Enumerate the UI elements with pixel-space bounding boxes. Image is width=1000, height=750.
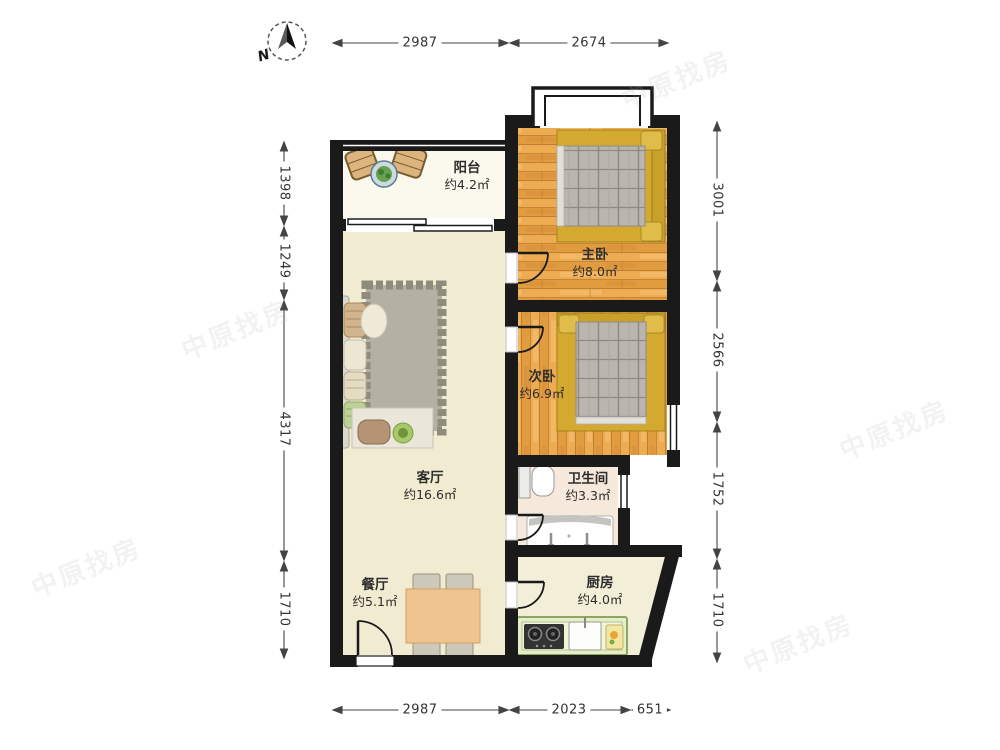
room-area: 约4.0㎡	[578, 592, 623, 608]
bathroom-window	[618, 475, 630, 508]
north-compass-icon	[268, 22, 306, 60]
dim-right-4: 1710	[710, 588, 725, 631]
dim-bottom-2: 2023	[547, 703, 590, 718]
room-area: 约4.2㎡	[445, 177, 490, 193]
room-area: 约8.0㎡	[573, 264, 618, 280]
room-label-living-room: 客厅 约16.6㎡	[404, 470, 457, 503]
dim-left-3: 4317	[277, 407, 292, 450]
room-name: 主卧	[573, 247, 618, 264]
second-bed	[557, 313, 665, 431]
room-label-master-bedroom: 主卧 约8.0㎡	[573, 247, 618, 280]
room-name: 厨房	[578, 575, 623, 592]
dim-top-2: 2674	[567, 36, 610, 51]
room-label-second-bedroom: 次卧 约6.9㎡	[520, 369, 565, 402]
room-area: 约6.9㎡	[520, 386, 565, 402]
room-name: 客厅	[404, 470, 457, 487]
bay-window	[533, 88, 652, 126]
master-bed	[557, 130, 665, 242]
dim-left-2: 1249	[277, 239, 292, 282]
room-area: 约16.6㎡	[404, 487, 457, 503]
dim-bottom-3: 651	[633, 703, 667, 718]
floor-plan-canvas	[0, 0, 1000, 750]
dim-right-3: 1752	[710, 467, 725, 510]
room-name: 次卧	[520, 369, 565, 386]
dim-bottom-1: 2987	[398, 703, 441, 718]
floor-plan-page: 阳台 约4.2㎡ 主卧 约8.0㎡ 次卧 约6.9㎡ 客厅 约16.6㎡ 卫生间…	[0, 0, 1000, 750]
dim-left-4: 1710	[277, 587, 292, 630]
room-label-dining-room: 餐厅 约5.1㎡	[353, 577, 398, 610]
dim-right-2: 2566	[710, 328, 725, 371]
second-bedroom-window	[667, 405, 680, 450]
room-label-balcony: 阳台 约4.2㎡	[445, 160, 490, 193]
balcony-sliding-door	[346, 218, 494, 232]
room-label-kitchen: 厨房 约4.0㎡	[578, 575, 623, 608]
room-name: 餐厅	[353, 577, 398, 594]
dim-left-1: 1398	[277, 161, 292, 204]
room-label-bathroom: 卫生间 约3.3㎡	[566, 471, 611, 504]
room-name: 卫生间	[566, 471, 611, 488]
kitchen-counter	[517, 617, 627, 655]
toilet	[519, 464, 554, 498]
dim-top-1: 2987	[398, 36, 441, 51]
room-name: 阳台	[445, 160, 490, 177]
room-area: 约5.1㎡	[353, 594, 398, 610]
room-area: 约3.3㎡	[566, 488, 611, 504]
dim-right-1: 3001	[710, 178, 725, 221]
bathroom-vanity	[527, 515, 613, 550]
